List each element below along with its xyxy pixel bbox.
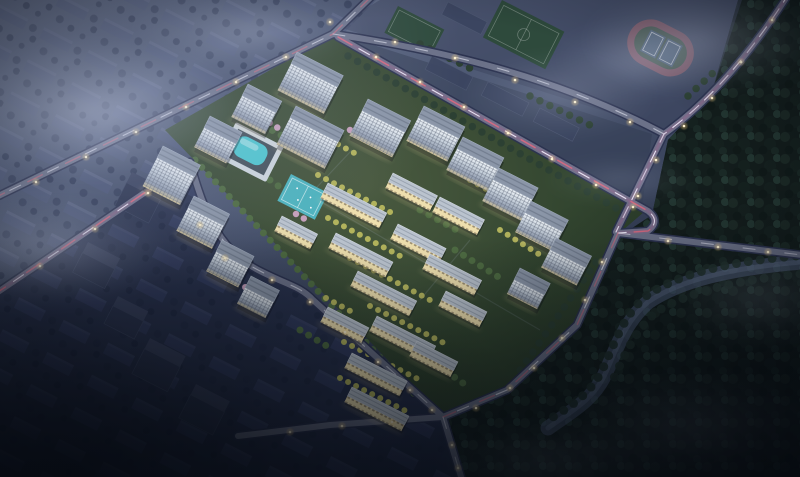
vignette (0, 0, 800, 477)
aerial-night-rendering (0, 0, 800, 477)
roads-and-buildings-layer (0, 0, 800, 477)
